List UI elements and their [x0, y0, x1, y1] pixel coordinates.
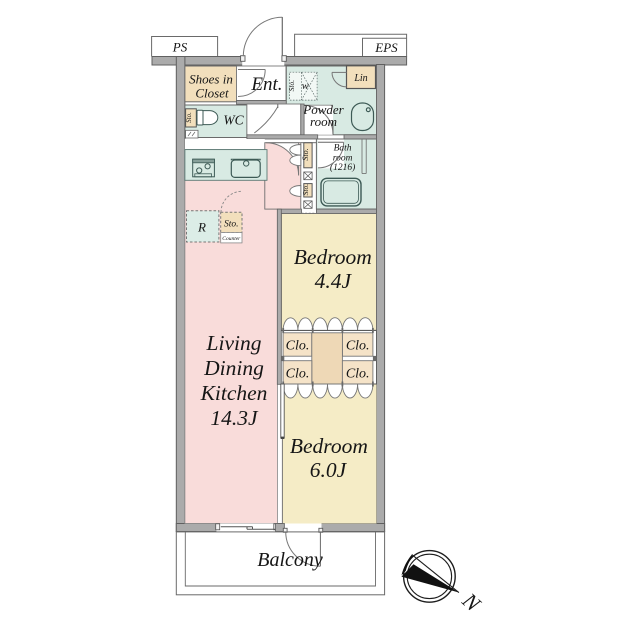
svg-text:PS: PS	[172, 40, 188, 55]
svg-text:Sto.: Sto.	[185, 112, 193, 123]
svg-text:EPS: EPS	[374, 40, 398, 55]
svg-text:Sto.: Sto.	[224, 220, 239, 230]
svg-text:6.0J: 6.0J	[310, 458, 348, 482]
svg-text:room: room	[310, 114, 337, 129]
svg-text:Bedroom: Bedroom	[294, 245, 372, 269]
svg-text:Clo.: Clo.	[346, 339, 370, 354]
svg-text:Lin: Lin	[353, 73, 367, 84]
svg-text:room: room	[333, 154, 353, 164]
svg-text:Bedroom: Bedroom	[290, 434, 368, 458]
svg-text:Balcony: Balcony	[257, 549, 323, 571]
svg-text:Ent.: Ent.	[250, 74, 282, 95]
svg-text:Sto.: Sto.	[287, 80, 296, 92]
svg-text:Dining: Dining	[203, 356, 264, 380]
svg-text:WC: WC	[223, 113, 244, 128]
svg-text:(1216): (1216)	[330, 162, 355, 173]
svg-text:Clo.: Clo.	[286, 367, 310, 382]
svg-text:N: N	[457, 587, 486, 617]
svg-text:Sto.: Sto.	[301, 184, 310, 196]
svg-text:w: w	[302, 81, 309, 92]
svg-text:Bath: Bath	[334, 144, 352, 154]
svg-text:Closet: Closet	[195, 86, 229, 101]
svg-text:Shoes in: Shoes in	[189, 72, 233, 87]
svg-text:14.3J: 14.3J	[210, 406, 259, 430]
svg-text:Clo.: Clo.	[346, 367, 370, 382]
svg-text:Counter: Counter	[222, 236, 241, 242]
svg-text:Living: Living	[206, 331, 262, 355]
svg-text:Sto.: Sto.	[301, 148, 310, 160]
svg-text:R: R	[197, 220, 206, 235]
svg-text:Clo.: Clo.	[286, 339, 310, 354]
svg-text:Kitchen: Kitchen	[200, 381, 268, 405]
svg-text:4.4J: 4.4J	[315, 269, 353, 293]
